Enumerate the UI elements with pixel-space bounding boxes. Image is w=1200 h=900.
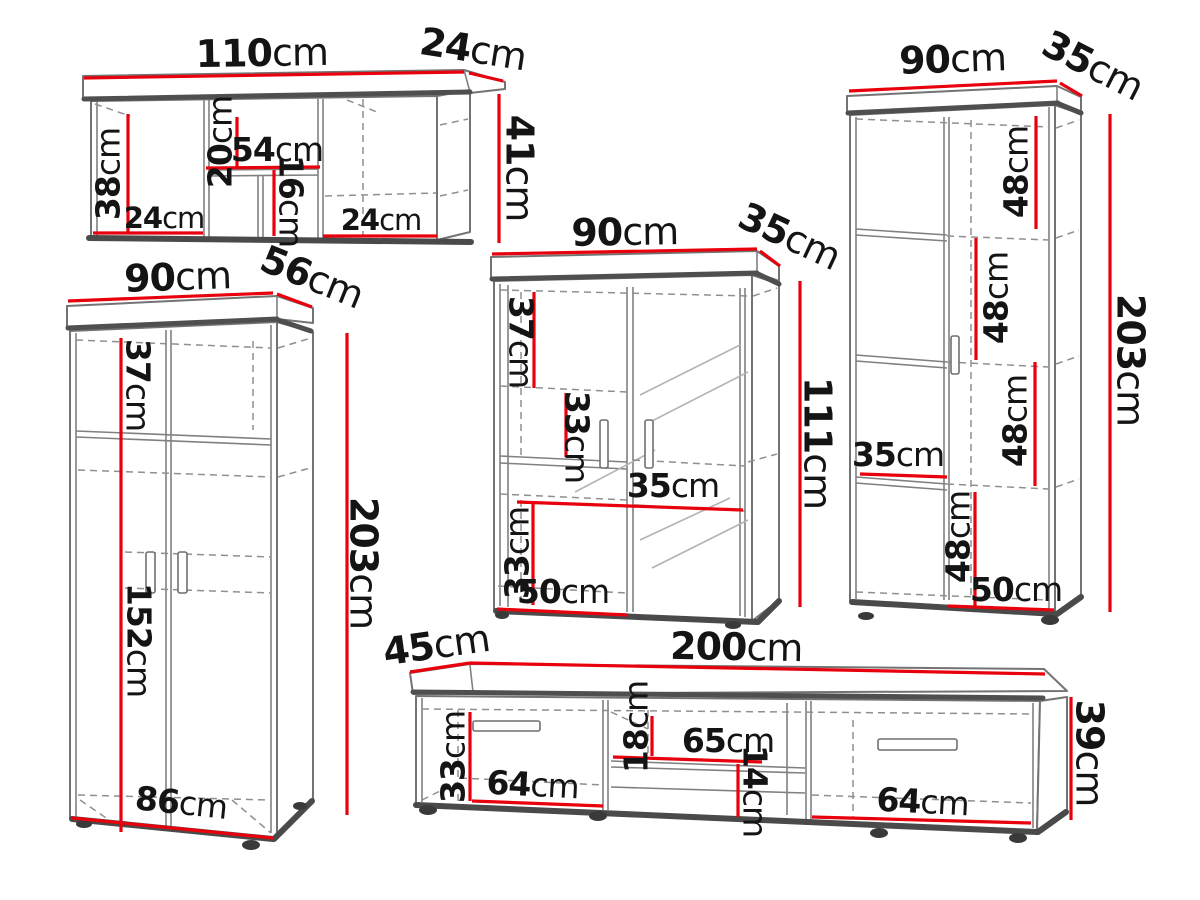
tv-stand-foot-3 [870, 828, 888, 838]
dim-tv-33: 33cm [434, 711, 473, 803]
tall-cabinet-drawing: 90cm 35cm 203cm 48cm 48cm 48cm 35cm 48cm… [847, 22, 1153, 625]
dim-wall-shelf-width: 110cm [195, 30, 328, 76]
dim-wall-shelf-38: 38cm [89, 128, 128, 220]
dim-wardrobe-height: 203cm [342, 497, 386, 629]
display-cabinet-side-face [752, 275, 779, 621]
dim-wardrobe-37: 37cm [118, 339, 157, 431]
dim-tall-50: 50cm [970, 570, 1062, 609]
dim-tv-width: 200cm [670, 624, 803, 670]
wardrobe-foot-back [293, 802, 307, 810]
dim-tall-48-1: 48cm [997, 126, 1036, 218]
dim-display-37: 37cm [501, 296, 540, 388]
dim-tv-18: 18cm [617, 681, 656, 773]
dim-wall-shelf-16: 16cm [271, 155, 310, 247]
furniture-dimension-diagram: 110cm 24cm 41cm 38cm 20cm 54cm 16cm 24cm… [0, 0, 1200, 900]
dim-tv-14: 14cm [735, 745, 774, 837]
tall-cabinet-foot-left [858, 612, 874, 620]
dim-tv-height: 39cm [1068, 700, 1112, 807]
tall-cabinet-foot-right [1041, 615, 1059, 625]
dim-tv-64-right: 64cm [876, 780, 970, 824]
display-cabinet-foot-left [495, 611, 509, 619]
wardrobe-drawing: 90cm 56cm 203cm 37cm 152cm 86cm [67, 237, 386, 850]
tv-stand-foot-4 [1009, 833, 1027, 843]
wardrobe-right-door-handle [178, 552, 187, 593]
dim-wall-shelf-24-left: 24cm [124, 201, 205, 235]
wardrobe-front-face [70, 322, 277, 838]
dim-display-height: 111cm [796, 377, 840, 509]
dim-tall-width: 90cm [898, 35, 1006, 83]
wardrobe-side-face [277, 322, 313, 838]
display-cabinet-left-handle [600, 420, 608, 468]
dim-wall-shelf-24-right: 24cm [341, 203, 422, 237]
wall-shelf-side-face [437, 90, 470, 240]
display-cabinet-drawing: 90cm 35cm 111cm 37cm 33cm 35cm 33cm 50cm [491, 194, 847, 629]
dim-tall-35-shelf: 35cm [852, 435, 944, 474]
dim-display-50: 50cm [517, 572, 609, 611]
tall-cabinet-door-handle [951, 336, 959, 374]
dim-tall-48-2: 48cm [977, 252, 1016, 344]
tv-stand-right-drawer-handle [878, 739, 957, 750]
tv-stand-foot-1 [419, 805, 437, 815]
dim-display-33-top: 33cm [557, 391, 596, 483]
dim-tv-64-left: 64cm [486, 763, 580, 807]
dim-wall-shelf-height: 41cm [498, 115, 542, 222]
dim-wardrobe-width: 90cm [123, 253, 231, 301]
dim-tall-48-3: 48cm [996, 375, 1035, 467]
tall-cabinet-side-face [1055, 105, 1081, 613]
display-cabinet-right-handle [645, 420, 653, 468]
tv-stand-foot-2 [589, 811, 607, 821]
diagram-canvas: 110cm 24cm 41cm 38cm 20cm 54cm 16cm 24cm… [0, 0, 1200, 900]
tv-stand-left-drawer-handle [473, 721, 540, 731]
wall-shelf-drawing: 110cm 24cm 41cm 38cm 20cm 54cm 16cm 24cm… [83, 19, 542, 247]
wardrobe-foot-right [242, 840, 260, 850]
dim-display-35-shelf: 35cm [627, 466, 719, 505]
dim-tall-height: 203cm [1109, 294, 1153, 426]
dim-display-width: 90cm [571, 209, 679, 255]
dim-wardrobe-152: 152cm [119, 583, 158, 697]
tv-stand-drawing: 45cm 200cm 39cm 33cm 64cm 18cm 65cm 14cm… [380, 616, 1111, 843]
